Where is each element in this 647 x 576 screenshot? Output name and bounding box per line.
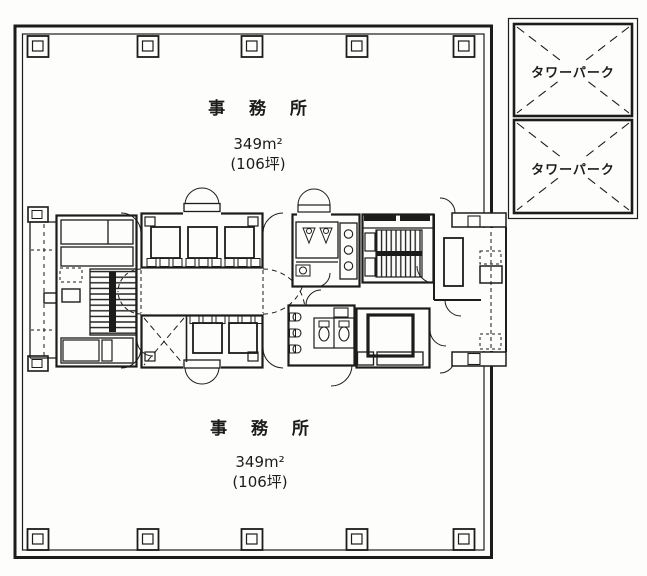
- office-bottom-area-tsubo: (106坪): [232, 473, 287, 491]
- column: [347, 529, 368, 550]
- column: [454, 36, 475, 57]
- column: [28, 207, 48, 222]
- right-stair-block: [362, 215, 434, 284]
- double-door-bottom: [183, 360, 221, 384]
- double-door-toilet-top: [297, 189, 331, 217]
- toilet-block-upper: [293, 189, 360, 287]
- toilet-block-lower: [289, 290, 355, 386]
- left-balcony-strip: [28, 207, 58, 371]
- office-bottom-area: 349m²: [235, 453, 284, 471]
- left-stair-block: [57, 216, 137, 367]
- elevator-bank-bottom: [142, 316, 263, 385]
- tower-park-top-label: タワーパーク: [531, 66, 615, 81]
- double-door-top: [183, 188, 221, 216]
- column: [138, 529, 159, 550]
- column: [28, 529, 49, 550]
- office-top-label: 事 務 所 349m² (106坪): [208, 98, 316, 173]
- tower-park-bottom-label: タワーパーク: [531, 163, 615, 178]
- column: [242, 529, 263, 550]
- floor-plan-drawing: 事 務 所 349m² (106坪) 事 務 所 349m² (106坪): [0, 0, 647, 576]
- office-top-name: 事 務 所: [208, 98, 316, 119]
- elevator-bank-top: [142, 188, 263, 268]
- machine-room: [357, 309, 456, 374]
- right-balcony-strip: [452, 213, 507, 366]
- office-top-area: 349m²: [233, 135, 282, 153]
- column: [138, 36, 159, 57]
- column: [28, 36, 49, 57]
- office-bottom-label: 事 務 所 349m² (106坪): [210, 418, 318, 491]
- tower-park-block: タワーパーク タワーパーク: [509, 19, 638, 219]
- office-top-area-tsubo: (106坪): [230, 155, 285, 173]
- tower-park-top: タワーパーク: [514, 24, 632, 116]
- column: [347, 36, 368, 57]
- door-swing: [331, 365, 352, 386]
- column: [242, 36, 263, 57]
- tower-park-bottom: タワーパーク: [514, 120, 632, 213]
- column: [454, 529, 475, 550]
- floor-plan-page: 事 務 所 349m² (106坪) 事 務 所 349m² (106坪): [0, 0, 647, 576]
- office-bottom-name: 事 務 所: [210, 418, 318, 439]
